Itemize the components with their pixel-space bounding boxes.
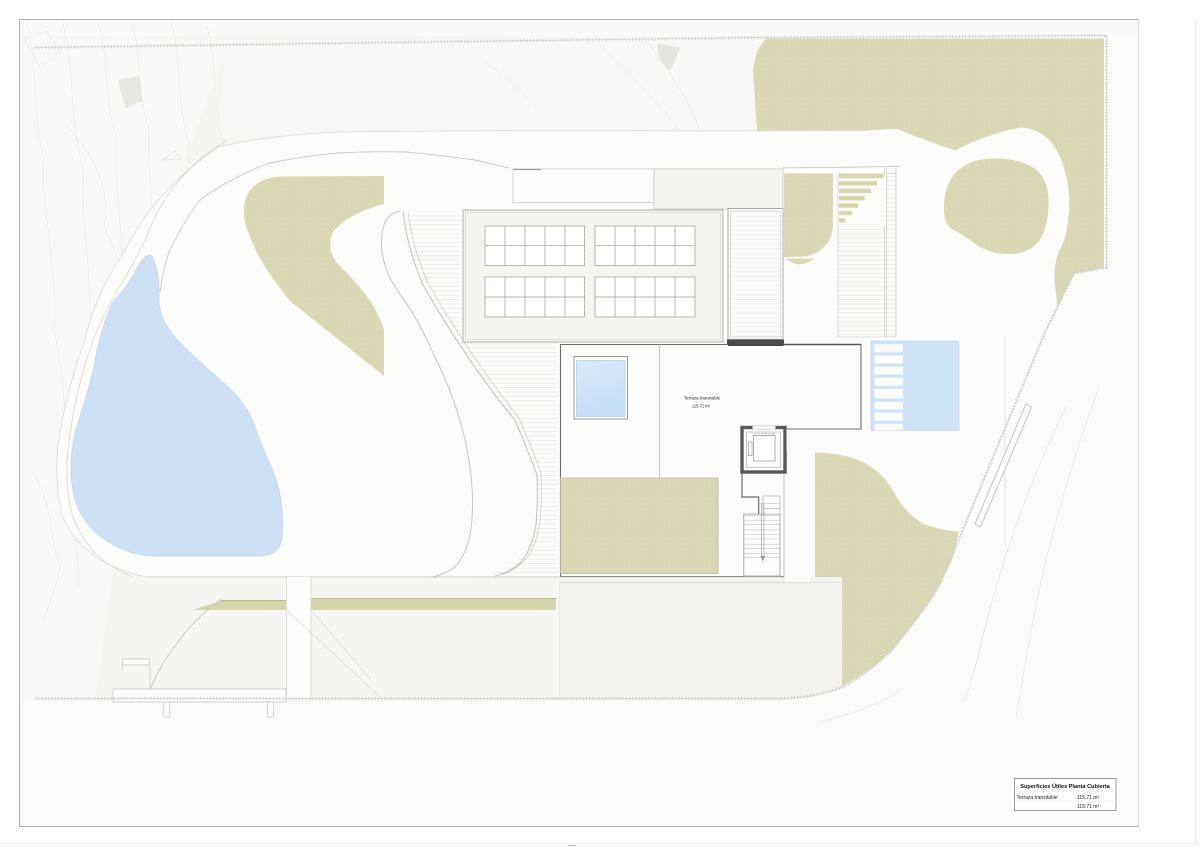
svg-text:Superficies Útiles Planta Cubi: Superficies Útiles Planta Cubierta: [1020, 783, 1110, 790]
svg-text:Terraza transitable: Terraza transitable: [684, 396, 721, 401]
svg-text:115.71 m²: 115.71 m²: [692, 404, 711, 409]
svg-text:Terraza transitable: Terraza transitable: [1017, 795, 1058, 801]
svg-text:115.71 m²: 115.71 m²: [1077, 795, 1099, 801]
svg-text:115.71 m²: 115.71 m²: [1077, 804, 1099, 810]
